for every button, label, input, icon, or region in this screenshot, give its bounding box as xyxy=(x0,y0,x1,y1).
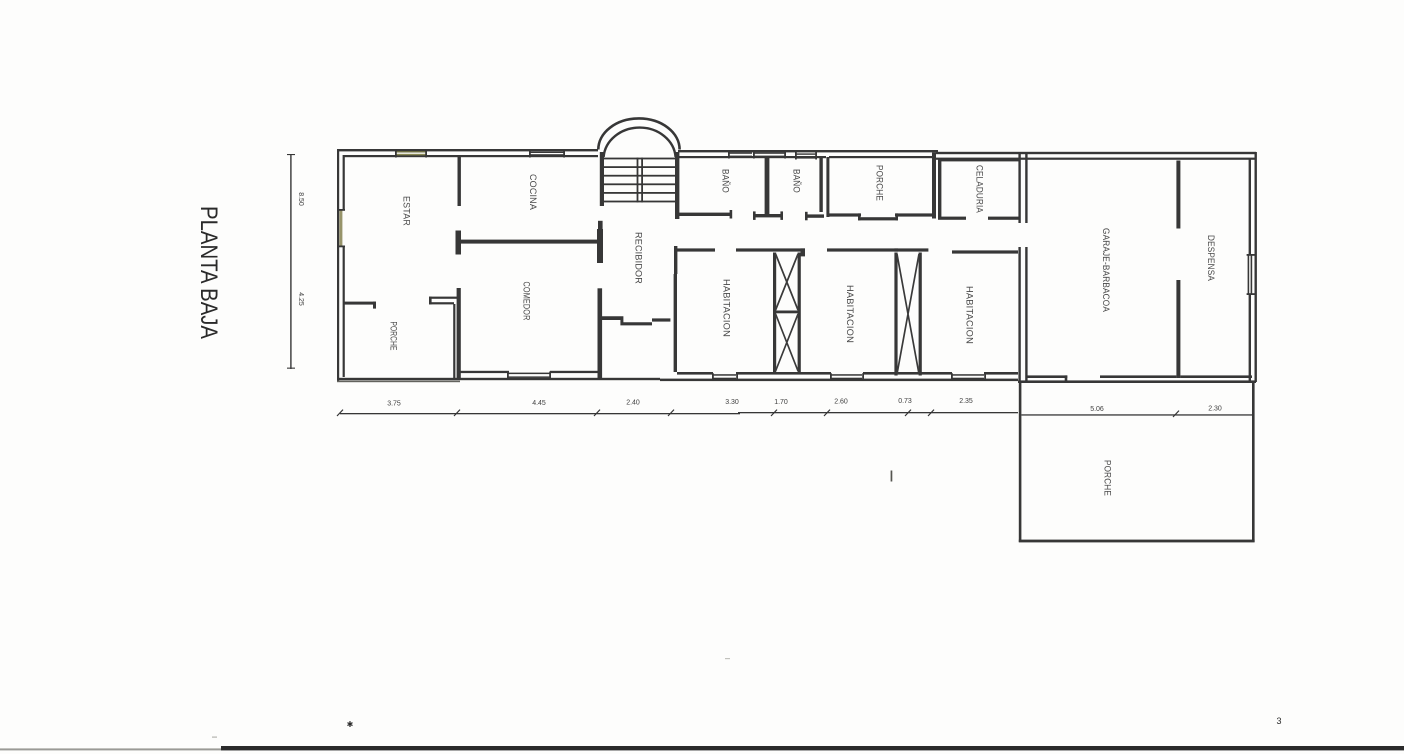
svg-text:ESTAR: ESTAR xyxy=(401,196,412,226)
svg-text:3: 3 xyxy=(1276,716,1281,726)
svg-text:5.06: 5.06 xyxy=(1090,406,1104,413)
svg-text:BAÑO: BAÑO xyxy=(720,169,731,193)
svg-text:✱: ✱ xyxy=(347,720,354,729)
svg-text:2.60: 2.60 xyxy=(834,399,848,406)
svg-text:8.50: 8.50 xyxy=(297,192,304,206)
svg-text:0.73: 0.73 xyxy=(898,398,912,405)
svg-text:2.40: 2.40 xyxy=(626,400,640,407)
svg-text:GARAJE-BARBACOA: GARAJE-BARBACOA xyxy=(1100,228,1111,312)
svg-text:CELADURIA: CELADURIA xyxy=(974,165,985,213)
svg-text:HABITACION: HABITACION xyxy=(721,279,732,337)
svg-text:PORCHE: PORCHE xyxy=(874,165,885,201)
svg-text:COCINA: COCINA xyxy=(527,174,538,210)
svg-text:RECIBIDOR: RECIBIDOR xyxy=(633,232,644,284)
svg-text:4.45: 4.45 xyxy=(532,400,546,407)
svg-text:BAÑO: BAÑO xyxy=(791,169,802,193)
svg-text:PORCHE: PORCHE xyxy=(388,322,399,351)
svg-text:COMEDOR: COMEDOR xyxy=(521,282,532,321)
svg-text:DESPENSA: DESPENSA xyxy=(1205,235,1216,281)
svg-text:1.70: 1.70 xyxy=(774,399,788,406)
svg-text:2.35: 2.35 xyxy=(959,398,973,405)
svg-text:PORCHE: PORCHE xyxy=(1102,460,1113,496)
svg-text:PLANTA BAJA: PLANTA BAJA xyxy=(195,206,222,339)
svg-text:HABITACION: HABITACION xyxy=(844,285,855,343)
svg-text:HABITACION: HABITACION xyxy=(964,286,975,344)
svg-text:2.30: 2.30 xyxy=(1208,406,1222,413)
svg-text:4.25: 4.25 xyxy=(297,292,304,306)
svg-text:3.75: 3.75 xyxy=(387,401,401,408)
svg-text:3.30: 3.30 xyxy=(725,399,739,406)
